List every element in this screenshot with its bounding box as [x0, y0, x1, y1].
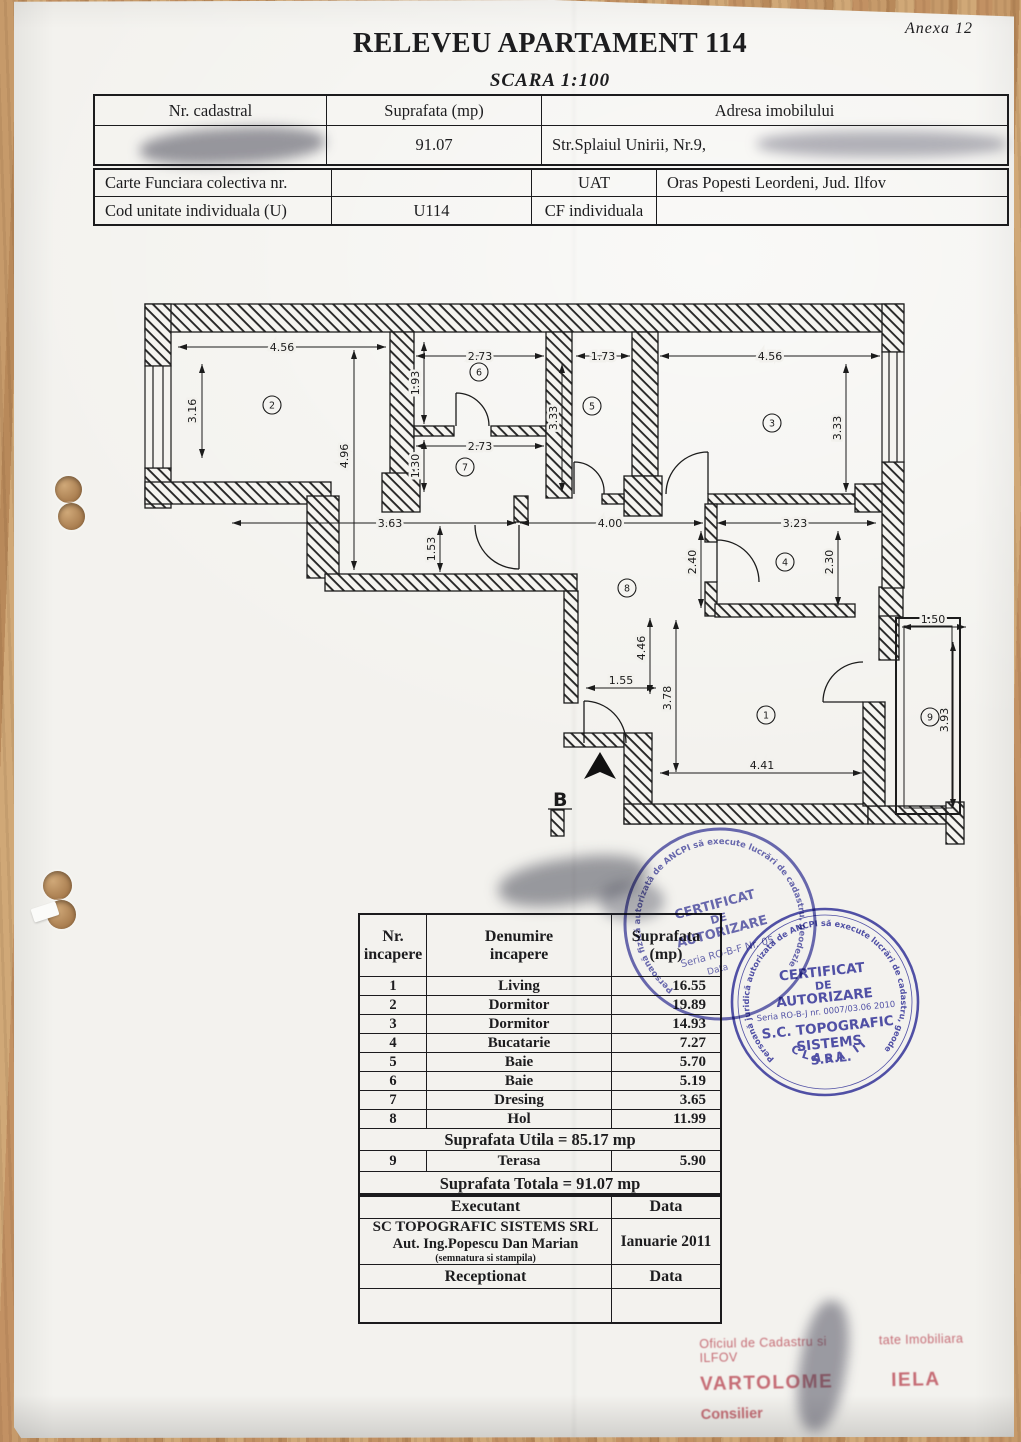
reception-date-empty-cell	[612, 1289, 720, 1322]
svg-text:4.46: 4.46	[635, 636, 648, 661]
redacted-address-part	[757, 131, 1007, 157]
receptionat-label: Receptionat	[360, 1265, 612, 1289]
svg-text:4.96: 4.96	[338, 444, 351, 469]
annex-label: Anexa 12	[905, 20, 973, 38]
cadastral-number-cell	[95, 126, 327, 164]
carte-funciara-label: Carte Funciara colectiva nr.	[95, 170, 332, 197]
company-name: SC TOPOGRAFIC SISTEMS SRL	[373, 1219, 599, 1236]
page-title: RELEVEU APARTAMENT 114	[270, 28, 830, 60]
svg-text:6: 6	[476, 368, 482, 379]
svg-text:1.93: 1.93	[409, 371, 422, 396]
svg-text:4.00: 4.00	[598, 517, 623, 530]
area-value-cell: 91.07	[327, 126, 542, 164]
office-stamp-name: VARTOLOMEIELA	[700, 1368, 1000, 1396]
data-label-2: Data	[612, 1265, 720, 1289]
svg-text:3.33: 3.33	[831, 416, 844, 441]
svg-text:2.73: 2.73	[468, 350, 493, 363]
svg-text:2.40: 2.40	[686, 550, 699, 575]
carte-funciara-value-cell	[332, 170, 532, 197]
data-label: Data	[612, 1195, 720, 1219]
table-row: Dresing	[427, 1091, 612, 1110]
svg-text:2.73: 2.73	[468, 440, 493, 453]
svg-text:1.53: 1.53	[425, 537, 438, 562]
table-row: 11.99	[612, 1110, 720, 1129]
table-row: 2	[360, 996, 427, 1015]
svg-text:3: 3	[769, 419, 775, 430]
svg-text:3.63: 3.63	[378, 517, 403, 530]
address-value-cell: Str.Splaiul Unirii, Nr.9,	[542, 126, 1007, 164]
total-row: Suprafata Totala = 91.07 mp	[360, 1172, 720, 1195]
uat-label: UAT	[532, 170, 657, 197]
executant-details: SC TOPOGRAFIC SISTEMS SRL Aut. Ing.Popes…	[360, 1219, 612, 1265]
uat-value: Oras Popesti Leordeni, Jud. Ilfov	[657, 170, 1007, 197]
terrace-row: 5.90	[612, 1151, 720, 1172]
svg-text:8: 8	[624, 584, 630, 595]
address-text: Str.Splaiul Unirii, Nr.9,	[552, 135, 706, 155]
table-row: Hol	[427, 1110, 612, 1129]
table-row: Bucatarie	[427, 1034, 612, 1053]
svg-text:S.R.L.: S.R.L.	[810, 1049, 852, 1068]
svg-text:3.23: 3.23	[783, 517, 808, 530]
svg-text:2: 2	[269, 401, 275, 412]
table-row: Dormitor	[427, 1015, 612, 1034]
north-arrow-icon: B	[548, 752, 616, 811]
svg-text:3.93: 3.93	[938, 708, 951, 733]
table-row: 3.65	[612, 1091, 720, 1110]
svg-text:5: 5	[589, 402, 595, 413]
table-row: 4	[360, 1034, 427, 1053]
table-row: 5.70	[612, 1053, 720, 1072]
window-symbols	[145, 352, 904, 468]
table-row: 5	[360, 1053, 427, 1072]
table-row: 3	[360, 1015, 427, 1034]
svg-text:4: 4	[782, 558, 788, 569]
unit-code-value: U114	[332, 197, 532, 224]
header-denumire: Denumireincapere	[427, 915, 612, 977]
table-row: Baie	[427, 1072, 612, 1091]
cadastre-office-stamp: Oficiul de Cadastru sitate Imobiliara IL…	[699, 1331, 1001, 1423]
svg-text:1.73: 1.73	[591, 350, 616, 363]
punch-hole	[43, 871, 72, 900]
land-book-table: Carte Funciara colectiva nr. UAT Oras Po…	[93, 168, 1009, 226]
svg-text:2.30: 2.30	[823, 550, 836, 575]
cadastral-info-table: Nr. cadastral Suprafata (mp) Adresa imob…	[93, 94, 1009, 166]
signature-note: (semnatura si stampila)	[435, 1253, 536, 1265]
svg-text:9: 9	[927, 713, 933, 724]
scale-label: SCARA 1:100	[370, 70, 730, 92]
scanned-cadastral-document: Anexa 12 RELEVEU APARTAMENT 114 SCARA 1:…	[0, 0, 1021, 1442]
svg-text:3.16: 3.16	[186, 399, 199, 424]
svg-text:3.78: 3.78	[661, 686, 674, 711]
table-row: 1	[360, 977, 427, 996]
svg-text:4.56: 4.56	[758, 350, 783, 363]
floor-plan-drawing: 4.56 3.16 4.96 2.73 1.93 2.73 1.30 1.73 …	[140, 290, 970, 850]
svg-text:1: 1	[763, 711, 769, 722]
date-value: Ianuarie 2011	[612, 1219, 720, 1265]
svg-text:4.56: 4.56	[270, 341, 295, 354]
cod-unitate-label: Cod unitate individuala (U)	[95, 197, 332, 224]
certificate-stamp-large: Persoană juridică autorizată de ANCPI să…	[715, 892, 935, 1112]
table-row: Living	[427, 977, 612, 996]
table-row: 6	[360, 1072, 427, 1091]
subtotal-row: Suprafata Utila = 85.17 mp	[360, 1129, 720, 1151]
terrace-row: Terasa	[427, 1151, 612, 1172]
svg-text:B: B	[553, 789, 567, 811]
header-nr-incapere: Nr.incapere	[360, 915, 427, 977]
col-header-nr-cadastral: Nr. cadastral	[95, 96, 327, 126]
walls	[145, 304, 964, 844]
svg-text:7: 7	[462, 463, 468, 474]
svg-text:1.30: 1.30	[409, 454, 422, 479]
punch-hole	[58, 503, 85, 530]
executant-label: Executant	[360, 1195, 612, 1219]
redacted-cadastral-number	[139, 123, 326, 169]
table-row: 7	[360, 1091, 427, 1110]
table-row: Dormitor	[427, 996, 612, 1015]
svg-text:4.41: 4.41	[750, 759, 775, 772]
table-row: 5.19	[612, 1072, 720, 1091]
svg-text:1.55: 1.55	[609, 674, 634, 687]
paper-sheet: Anexa 12 RELEVEU APARTAMENT 114 SCARA 1:…	[14, 0, 1014, 1438]
cf-individuala-value-cell	[657, 197, 1007, 224]
office-stamp-line1: Oficiul de Cadastru sitate Imobiliara IL…	[699, 1331, 1000, 1365]
office-stamp-title: Consilier	[701, 1401, 1001, 1423]
cf-individuala-label: CF individuala	[532, 197, 657, 224]
terrace-row: 9	[360, 1151, 427, 1172]
executant-table: Executant Data SC TOPOGRAFIC SISTEMS SRL…	[358, 1193, 722, 1324]
table-row: 8	[360, 1110, 427, 1129]
col-header-adresa: Adresa imobilului	[542, 96, 1007, 126]
svg-text:1.50: 1.50	[921, 613, 946, 626]
svg-text:3.33: 3.33	[547, 406, 560, 431]
table-row: Baie	[427, 1053, 612, 1072]
engineer-name: Aut. Ing.Popescu Dan Marian	[393, 1236, 579, 1253]
punch-hole	[55, 476, 82, 503]
col-header-suprafata: Suprafata (mp)	[327, 96, 542, 126]
reception-empty-cell	[360, 1289, 612, 1322]
